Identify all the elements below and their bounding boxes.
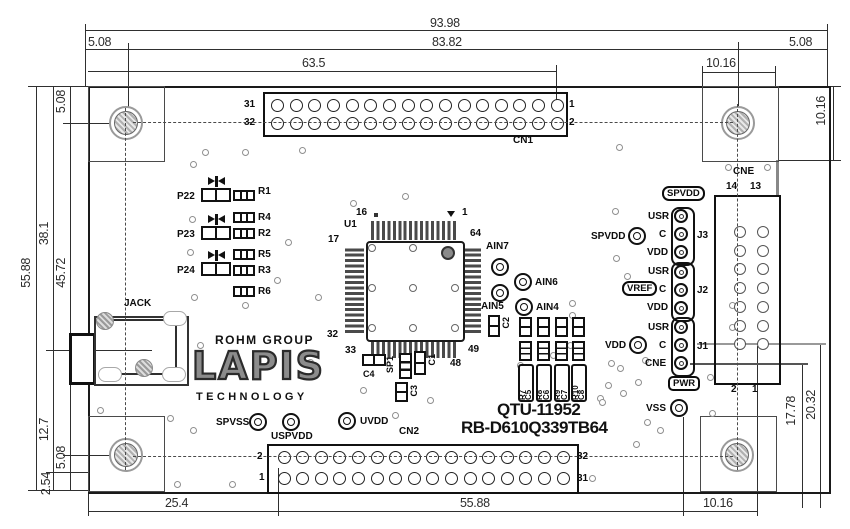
via: [764, 164, 771, 171]
via: [392, 412, 399, 419]
via: [242, 149, 249, 156]
j2-pin3-label: VDD: [647, 302, 668, 313]
jack-label: JACK: [124, 298, 151, 309]
cn2-hole: [333, 472, 346, 485]
cn1-hole: [346, 117, 359, 130]
cn1-hole: [458, 117, 471, 130]
dim-text-left-in-bot: 5.08: [54, 446, 68, 469]
cn2-row1-right-label: 32: [577, 451, 588, 462]
via: [569, 300, 576, 307]
u1-grid-dot: [451, 324, 459, 332]
via: [613, 255, 620, 262]
resistor-body: [537, 341, 550, 361]
cn2-hole: [371, 472, 384, 485]
dim-line-93-98: [85, 30, 827, 31]
cne-label: CNE: [733, 166, 754, 177]
cn2-row1-left-label: 2: [257, 451, 263, 462]
cn1-hole: [402, 117, 415, 130]
dim-line-left-inner: [70, 86, 71, 490]
sp1-body: [399, 353, 412, 379]
led-body: [201, 188, 231, 202]
c2-label: C2: [501, 317, 511, 329]
vss-pad: [670, 399, 688, 417]
j1-pin2-label: C: [659, 340, 666, 351]
cn2-hole: [445, 451, 458, 464]
cn2-hole: [296, 451, 309, 464]
u1-pins-top: [371, 221, 458, 240]
j1-pin3-label: CNE: [645, 358, 666, 369]
led-symbol: [208, 215, 225, 224]
via: [427, 397, 434, 404]
dim-text-br-v1: 17.78: [784, 396, 798, 426]
resistor-body: [572, 341, 585, 361]
cn1-hole: [476, 99, 489, 112]
rc-label-box: R8C6: [536, 364, 552, 402]
cn1-hole: [420, 99, 433, 112]
cn2-hole: [538, 451, 551, 464]
jack-pad: [98, 367, 122, 382]
u1-grid-dot: [368, 244, 376, 252]
via: [167, 415, 174, 422]
centerline-right: [737, 104, 738, 470]
via: [657, 427, 664, 434]
u1-pin64-label: 64: [470, 228, 481, 239]
cn1-hole: [476, 117, 489, 130]
via: [608, 360, 615, 367]
cn1-hole: [420, 117, 433, 130]
cn1-row1-right-label: 1: [569, 99, 575, 110]
spvdd-boxed-label: SPVDD: [662, 186, 705, 201]
cne-connector: [714, 195, 781, 385]
cn2-hole: [389, 451, 402, 464]
uspvdd-pad: [282, 413, 300, 431]
uvdd-label: UVDD: [360, 416, 388, 427]
via: [189, 216, 196, 223]
cn1-hole: [308, 117, 321, 130]
cn1-hole: [513, 117, 526, 130]
cn1-label: CN1: [513, 135, 533, 146]
dim-text-left-in-mid: 45.72: [54, 258, 68, 288]
cne-pin2-label: 2: [731, 384, 737, 395]
j3-pin1-label: USR: [648, 211, 669, 222]
dim-line-left-mid: [53, 86, 54, 490]
j1-pin: [674, 338, 688, 352]
ext-line: [28, 490, 90, 491]
cn2-hole: [519, 472, 532, 485]
cn2-hole: [333, 451, 346, 464]
j3-pin: [674, 245, 688, 259]
resistor-r1-label: R1: [258, 186, 271, 197]
j2-label: J2: [697, 285, 708, 296]
cn2-hole: [315, 472, 328, 485]
ain5-label: AIN5: [481, 301, 504, 312]
cn2-hole: [501, 472, 514, 485]
u1-pins-left: [345, 246, 364, 333]
cn2-hole: [538, 472, 551, 485]
dim-text-bottom-right: 10.16: [703, 496, 733, 510]
resistor-body: [233, 190, 255, 201]
cn2-hole: [519, 451, 532, 464]
resistor-body: [233, 265, 255, 276]
cne-pin1-label: 1: [752, 384, 758, 395]
dim-line-bottom: [88, 511, 757, 512]
via: [616, 144, 623, 151]
via: [315, 294, 322, 301]
resistor-r4-label: R4: [258, 212, 271, 223]
cn2-row2-right-label: 31: [577, 473, 588, 484]
dim-text-inner-width: 83.82: [432, 35, 462, 49]
cn1-hole: [364, 117, 377, 130]
rc-capacitor-label: C6: [544, 366, 551, 400]
cn1-hole: [551, 117, 564, 130]
cn2-hole: [464, 472, 477, 485]
via: [635, 379, 642, 386]
dim-line-83-82: [85, 49, 827, 50]
part-number-1: QTU-11952: [497, 400, 580, 420]
via: [190, 427, 197, 434]
uspvdd-label: USPVDD: [271, 431, 313, 442]
u1-pin16-label: 16: [356, 207, 367, 218]
via: [620, 390, 627, 397]
mounting-hole-tr: [721, 106, 755, 140]
j2-pin: [674, 283, 688, 297]
via: [589, 475, 596, 482]
resistor-body: [233, 212, 255, 223]
mounting-hole-tl: [109, 106, 143, 140]
j3-pin: [674, 227, 688, 241]
dim-text-hole-offset: 10.16: [706, 56, 736, 70]
cn1-hole: [327, 117, 340, 130]
ain5-pad: [491, 284, 509, 302]
jack-hole: [96, 312, 114, 330]
via: [624, 273, 631, 280]
cn2-hole: [315, 451, 328, 464]
cn1-hole: [271, 117, 284, 130]
u1-grid-dot: [409, 324, 417, 332]
cn1-hole: [458, 99, 471, 112]
u1-pin1-label: 1: [462, 207, 468, 218]
ext-line: [827, 24, 828, 86]
u1-grid-dot: [409, 284, 417, 292]
sp1-label: SP1: [385, 356, 395, 373]
j3-pin2-label: C: [659, 229, 666, 240]
vdd-pad: [629, 336, 647, 354]
ext-line: [702, 66, 703, 86]
cn1-hole: [551, 99, 564, 112]
cn2-hole: [408, 472, 421, 485]
via: [202, 149, 209, 156]
dim-text-left-in-top: 5.08: [54, 90, 68, 113]
cn2-row2-left-label: 1: [259, 472, 265, 483]
mounting-hole-bl: [109, 438, 143, 472]
capacitor-body: [519, 317, 532, 337]
jack-hole: [135, 359, 153, 377]
cn2-hole: [482, 451, 495, 464]
c3-label: C3: [409, 385, 419, 397]
resistor-r3-label: R3: [258, 265, 271, 276]
via: [707, 374, 714, 381]
u1-pin16-mark: [374, 213, 378, 217]
cn1-hole: [532, 117, 545, 130]
cne-hole: [734, 301, 746, 313]
u1-grid-dot: [409, 244, 417, 252]
spvdd-pad: [628, 227, 646, 245]
cne-pin14-label: 14: [726, 181, 737, 192]
led-p24-label: P24: [177, 265, 195, 276]
ain6-label: AIN6: [535, 277, 558, 288]
j3-pin: [674, 209, 688, 223]
ain4-pad: [515, 298, 533, 316]
u1-pin49-label: 49: [468, 344, 479, 355]
via: [725, 164, 732, 171]
led-body: [201, 262, 231, 276]
rc-capacitor-label: C8: [579, 366, 586, 400]
dim-text-left-seg1: 38.1: [37, 222, 51, 245]
uvdd-pad: [338, 412, 356, 430]
capacitor-body: [572, 317, 585, 337]
ext-line: [28, 86, 90, 87]
centerline-left: [125, 108, 126, 470]
cne-hole: [757, 320, 769, 332]
resistor-body: [555, 341, 568, 361]
j2-pin: [674, 301, 688, 315]
cn1-hole: [402, 99, 415, 112]
dim-text-bottom-mid: 55.88: [460, 496, 490, 510]
cn2-hole: [445, 472, 458, 485]
cn1-hole: [327, 99, 340, 112]
j2-pin: [674, 265, 688, 279]
pcb-dimensional-drawing: 93.98 5.08 83.82 5.08 63.5 10.16 10.16 5…: [0, 0, 850, 529]
j1-label: J1: [697, 341, 708, 352]
led-p22-label: P22: [177, 191, 195, 202]
cne-hole: [757, 226, 769, 238]
cn1-hole: [383, 117, 396, 130]
rc-label-box: R10C8: [571, 364, 587, 402]
dim-text-left-seg3: 2.54: [39, 472, 53, 495]
via: [174, 481, 181, 488]
c4-body: [362, 354, 386, 366]
c4-label: C4: [363, 369, 375, 379]
part-number-2: RB-D610Q339TB64: [461, 418, 608, 438]
vdd-pad-label: VDD: [605, 340, 626, 351]
via: [191, 294, 198, 301]
cn1-hole: [439, 117, 452, 130]
ain6-pad: [514, 273, 532, 291]
cn2-hole: [482, 472, 495, 485]
resistor-body: [233, 249, 255, 260]
c1-label: C1: [427, 354, 437, 366]
dim-text-br-v2: 20.32: [804, 390, 818, 420]
centerline-bottom: [133, 456, 733, 457]
cn1-row2-left-label: 32: [244, 117, 255, 128]
centerline-top: [133, 122, 733, 123]
c3-body: [395, 382, 408, 402]
cn1-hole: [346, 99, 359, 112]
via: [605, 382, 612, 389]
j3-label: J3: [697, 230, 708, 241]
j2-pin1-label: USR: [648, 266, 669, 277]
via: [350, 200, 357, 207]
cn2-connector: [267, 444, 579, 494]
cn2-hole: [278, 472, 291, 485]
jack-pad: [162, 367, 186, 382]
cne-hole: [734, 245, 746, 257]
via: [402, 193, 409, 200]
dim-text-left-total: 55.88: [19, 258, 33, 288]
cn1-hole: [513, 99, 526, 112]
via: [633, 441, 640, 448]
resistor-body: [519, 341, 532, 361]
cn2-hole: [557, 451, 570, 464]
cn2-hole: [352, 451, 365, 464]
spvdd-pad-label: SPVDD: [591, 231, 625, 242]
cn2-hole: [371, 451, 384, 464]
via: [97, 407, 104, 414]
cn2-label: CN2: [399, 426, 419, 437]
resistor-body: [233, 286, 255, 297]
via: [599, 399, 606, 406]
via: [242, 302, 249, 309]
jack-barrel: [69, 333, 96, 385]
cne-hole: [757, 245, 769, 257]
cn1-hole: [439, 99, 452, 112]
resistor-r2-label: R2: [258, 228, 271, 239]
dim-text-right-offset: 5.08: [789, 35, 812, 49]
c1-body: [414, 351, 426, 375]
ain7-pad: [491, 258, 509, 276]
cn1-row1-left-label: 31: [244, 99, 255, 110]
via: [617, 365, 624, 372]
cne-hole: [734, 226, 746, 238]
cn1-hole: [271, 99, 284, 112]
rc-label-box: R7C5: [518, 364, 534, 402]
cn1-hole: [383, 99, 396, 112]
technology-logo: TECHNOLOGY: [196, 391, 308, 403]
u1-pin1-marker: [441, 246, 455, 260]
cn1-hole: [308, 99, 321, 112]
ain7-label: AIN7: [486, 241, 509, 252]
vss-label: VSS: [646, 403, 666, 414]
cn1-hole: [290, 99, 303, 112]
led-symbol: [208, 177, 225, 186]
dim-text-left-seg2: 12.7: [37, 418, 51, 441]
cne-hole: [757, 282, 769, 294]
c2-body: [488, 315, 500, 337]
cn2-hole: [426, 451, 439, 464]
ext-line: [85, 24, 86, 86]
cn2-hole: [352, 472, 365, 485]
resistor-r5-label: R5: [258, 249, 271, 260]
cn1-hole: [495, 117, 508, 130]
capacitor-body: [555, 317, 568, 337]
via: [187, 249, 194, 256]
dim-line-63-5: [88, 71, 556, 72]
jack-pad: [163, 311, 187, 326]
dim-text-total-width: 93.98: [430, 16, 460, 30]
rc-capacitor-label: C5: [526, 366, 533, 400]
led-symbol: [208, 251, 225, 260]
rc-capacitor-label: C7: [562, 366, 569, 400]
j1-pin1-label: USR: [648, 322, 669, 333]
cn1-hole: [495, 99, 508, 112]
via: [229, 481, 236, 488]
cn2-hole: [296, 472, 309, 485]
cn2-hole: [426, 472, 439, 485]
u1-grid-dot: [368, 284, 376, 292]
cn2-hole: [464, 451, 477, 464]
spvss-label: SPVSS: [216, 417, 249, 428]
cn2-hole: [501, 451, 514, 464]
rc-label-box: R9C7: [554, 364, 570, 402]
cne-hole: [734, 282, 746, 294]
via: [299, 147, 306, 154]
via: [274, 277, 281, 284]
dim-text-left-offset: 5.08: [88, 35, 111, 49]
dim-line-10-16-right: [833, 86, 834, 160]
j1-pin: [674, 356, 688, 370]
cn2-hole: [278, 451, 291, 464]
via: [644, 419, 651, 426]
spvss-pad: [249, 413, 267, 431]
resistor-body: [233, 228, 255, 239]
cn2-hole: [389, 472, 402, 485]
cne-pin13-label: 13: [750, 181, 761, 192]
via: [190, 161, 197, 168]
led-body: [201, 226, 231, 240]
cne-hole: [734, 320, 746, 332]
via: [709, 410, 716, 417]
cn2-hole: [557, 472, 570, 485]
u1-pin32-label: 32: [327, 329, 338, 340]
ain4-label: AIN4: [536, 302, 559, 313]
cn2-hole: [408, 451, 421, 464]
resistor-r6-label: R6: [258, 286, 271, 297]
ext-line: [775, 66, 776, 86]
dim-text-cn1: 63.5: [302, 56, 325, 70]
lapis-logo: LAPIS: [192, 344, 325, 388]
u1-pin17-label: 17: [328, 234, 339, 245]
j2-pin2-label: C: [659, 284, 666, 295]
u1-ref-label: U1: [344, 219, 357, 230]
pwr-boxed-label: PWR: [668, 376, 700, 391]
u1-grid-dot: [451, 284, 459, 292]
u1-pin33-label: 33: [345, 345, 356, 356]
cn1-hole: [532, 99, 545, 112]
led-p23-label: P23: [177, 229, 195, 240]
j3-pin3-label: VDD: [647, 247, 668, 258]
cne-hole: [757, 301, 769, 313]
capacitor-body: [537, 317, 550, 337]
via: [612, 208, 619, 215]
via: [360, 387, 367, 394]
cn1-row2-right-label: 2: [569, 117, 575, 128]
cn1-hole: [364, 99, 377, 112]
u1-grid-dot: [368, 324, 376, 332]
via: [285, 239, 292, 246]
dim-text-right-hole: 10.16: [814, 96, 828, 126]
cn1-hole: [290, 117, 303, 130]
u1-pin48-label: 48: [450, 358, 461, 369]
vref-boxed-label: VREF: [622, 281, 657, 296]
j1-pin: [674, 320, 688, 334]
dim-text-bottom-left: 25.4: [165, 496, 188, 510]
u1-pin1-arrow: [447, 211, 455, 217]
